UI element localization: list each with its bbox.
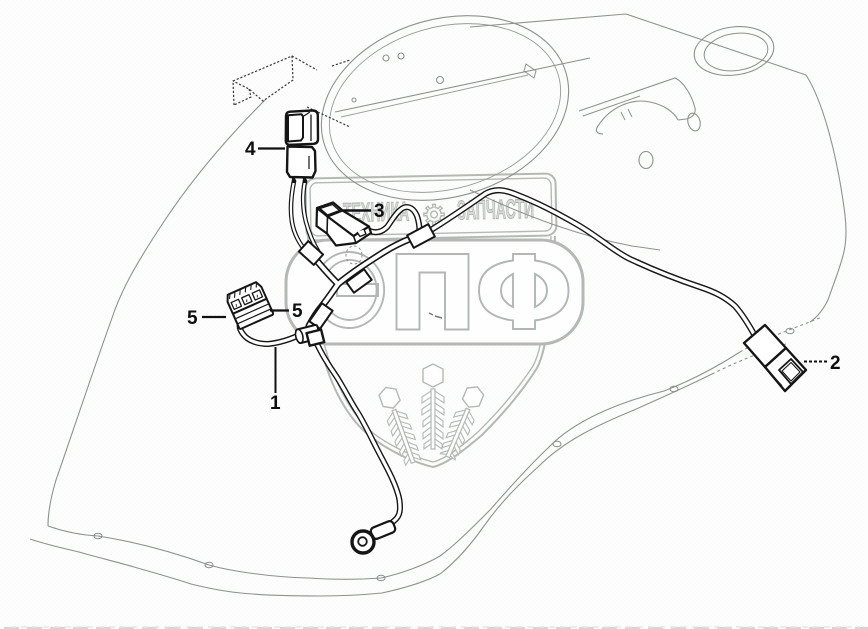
svg-text:5: 5 (292, 301, 303, 322)
svg-text:5: 5 (187, 308, 198, 329)
svg-text:1: 1 (270, 393, 281, 414)
svg-text:3: 3 (374, 201, 385, 222)
svg-text:2: 2 (830, 353, 841, 374)
svg-text:4: 4 (245, 139, 256, 160)
